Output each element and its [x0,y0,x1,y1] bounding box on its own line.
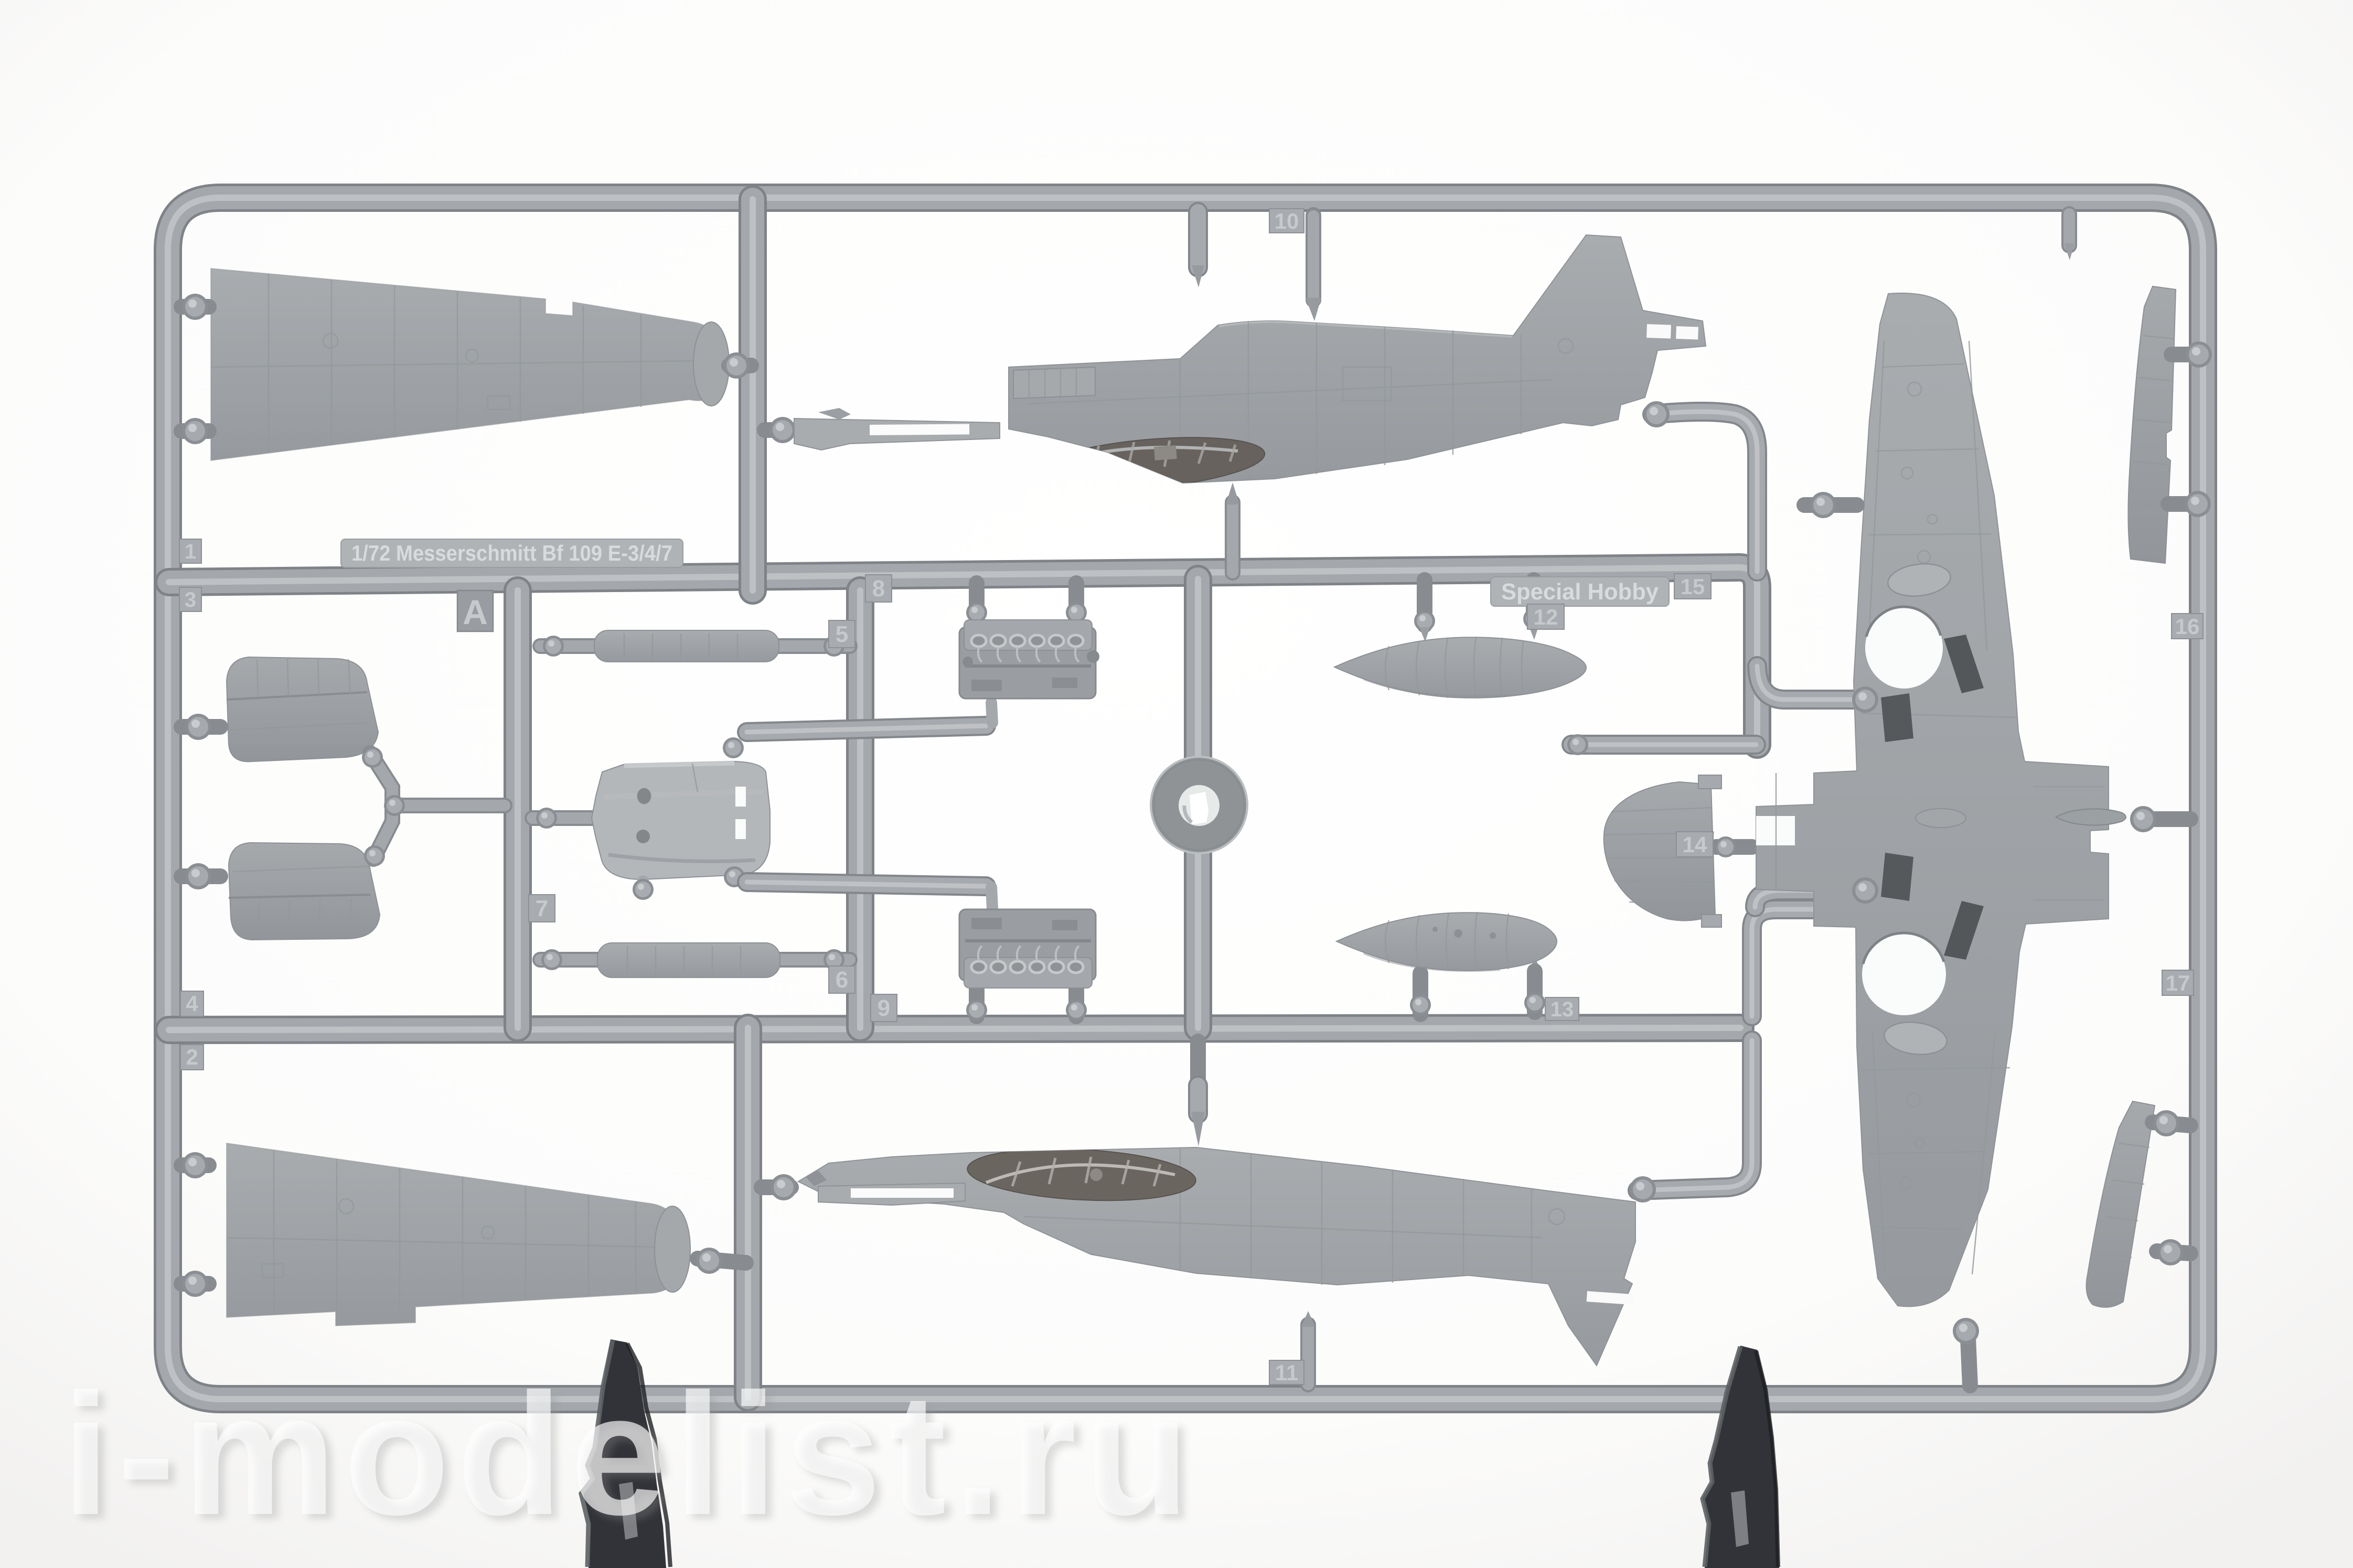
svg-text:4: 4 [186,991,198,1016]
svg-text:17: 17 [2166,971,2190,995]
svg-text:1/72 Messerschmitt Bf 109 E-3/: 1/72 Messerschmitt Bf 109 E-3/4/7 [351,541,672,565]
svg-text:Special Hobby: Special Hobby [1501,579,1659,605]
svg-text:6: 6 [836,967,848,993]
svg-text:2: 2 [186,1045,198,1069]
svg-text:7: 7 [536,896,548,921]
svg-text:13: 13 [1550,998,1574,1021]
svg-text:3: 3 [185,588,196,611]
svg-text:8: 8 [872,576,885,602]
svg-text:12: 12 [1534,605,1558,629]
svg-text:9: 9 [878,995,890,1021]
svg-text:11: 11 [1275,1360,1298,1385]
svg-text:A: A [463,593,488,631]
svg-text:5: 5 [836,621,848,647]
svg-text:i-modelist.ru: i-modelist.ru [62,1357,1190,1551]
svg-text:10: 10 [1275,209,1299,233]
svg-text:1: 1 [185,540,196,563]
svg-text:16: 16 [2175,614,2200,639]
svg-text:15: 15 [1681,574,1705,599]
svg-text:14: 14 [1683,832,1707,857]
